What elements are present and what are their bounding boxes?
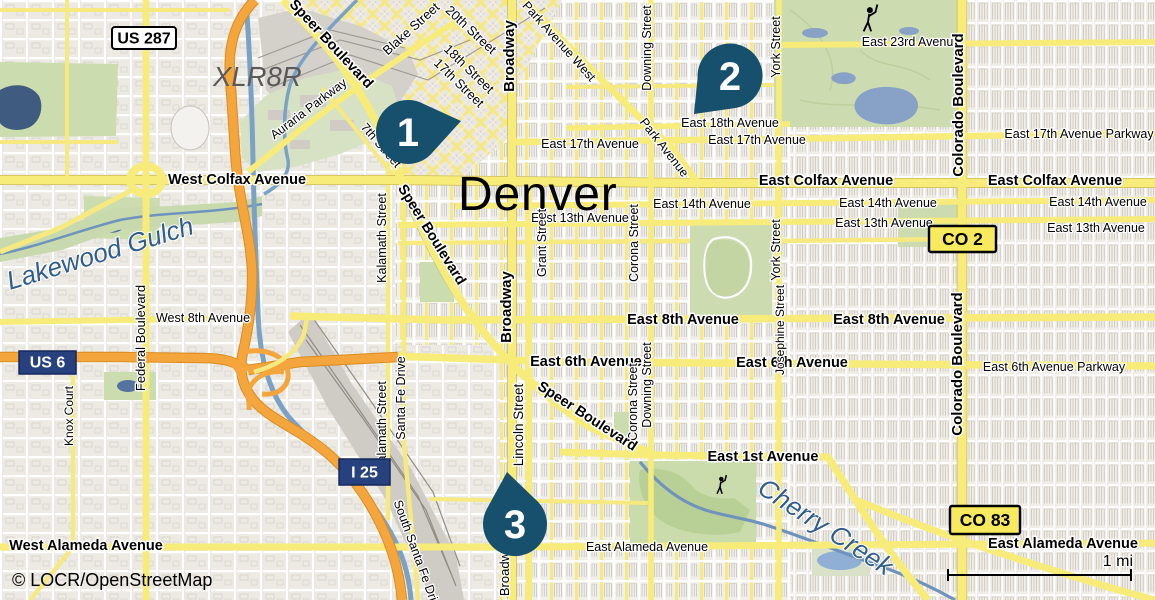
- svg-text:Lincoln Street: Lincoln Street: [511, 383, 526, 466]
- svg-text:XLR8R: XLR8R: [212, 61, 302, 92]
- svg-text:East 17th Avenue Parkway: East 17th Avenue Parkway: [1004, 127, 1154, 141]
- svg-text:Knox Court: Knox Court: [62, 385, 76, 446]
- svg-text:East 18th Avenue: East 18th Avenue: [681, 116, 779, 130]
- svg-text:York Street: York Street: [769, 16, 783, 78]
- svg-text:Colorado Boulevard: Colorado Boulevard: [950, 33, 967, 176]
- svg-text:East 14th Avenue: East 14th Avenue: [653, 197, 751, 211]
- svg-text:3: 3: [504, 503, 526, 547]
- svg-text:US 287: US 287: [117, 31, 170, 48]
- svg-text:East 14th Avenue: East 14th Avenue: [839, 196, 937, 210]
- svg-text:Downing Street: Downing Street: [640, 5, 654, 91]
- svg-text:East 13th Avenue: East 13th Avenue: [1047, 221, 1145, 235]
- svg-text:Broadway: Broadway: [501, 20, 518, 92]
- svg-text:Colorado Boulevard: Colorado Boulevard: [949, 292, 966, 435]
- svg-text:2: 2: [719, 55, 741, 99]
- svg-text:© LOCR/OpenStreetMap: © LOCR/OpenStreetMap: [12, 570, 212, 590]
- svg-text:East 17th Avenue: East 17th Avenue: [541, 137, 639, 151]
- svg-text:East Colfax Avenue: East Colfax Avenue: [988, 173, 1122, 189]
- svg-text:East 23rd Avenue: East 23rd Avenue: [862, 35, 961, 49]
- svg-text:West Colfax Avenue: West Colfax Avenue: [168, 172, 306, 188]
- svg-text:York Street: York Street: [769, 219, 783, 281]
- svg-text:US 6: US 6: [30, 355, 66, 372]
- svg-text:East 1st Avenue: East 1st Avenue: [708, 449, 819, 465]
- svg-text:East 17th Avenue: East 17th Avenue: [708, 133, 806, 147]
- svg-text:East 6th Avenue Parkway: East 6th Avenue Parkway: [983, 360, 1126, 374]
- svg-text:Corona Street: Corona Street: [627, 204, 641, 282]
- svg-text:CO 2: CO 2: [942, 229, 983, 249]
- svg-text:I 25: I 25: [351, 465, 378, 482]
- svg-text:West 8th Avenue: West 8th Avenue: [156, 311, 250, 325]
- svg-text:East 14th Avenue: East 14th Avenue: [1049, 195, 1147, 209]
- svg-text:East 8th Avenue: East 8th Avenue: [627, 312, 739, 328]
- svg-text:East 8th Avenue: East 8th Avenue: [833, 312, 945, 328]
- svg-text:Broadway: Broadway: [498, 271, 515, 343]
- svg-text:Josephine Street: Josephine Street: [773, 284, 787, 375]
- svg-text:West Alameda Avenue: West Alameda Avenue: [9, 538, 163, 554]
- svg-text:CO 83: CO 83: [960, 510, 1011, 530]
- svg-text:Federal Boulevard: Federal Boulevard: [133, 285, 148, 391]
- svg-text:East 13th Avenue: East 13th Avenue: [835, 216, 933, 230]
- svg-text:Grant Street: Grant Street: [535, 208, 549, 277]
- svg-text:Corona Street: Corona Street: [626, 363, 640, 441]
- svg-text:Santa Fe Drive: Santa Fe Drive: [394, 356, 408, 439]
- svg-text:Kalamath Street: Kalamath Street: [375, 193, 389, 283]
- svg-text:1 mi: 1 mi: [1103, 553, 1133, 570]
- svg-text:East Alameda Avenue: East Alameda Avenue: [586, 540, 708, 554]
- svg-text:East Alameda Avenue: East Alameda Avenue: [988, 536, 1138, 552]
- svg-text:Downing Street: Downing Street: [640, 342, 654, 428]
- svg-text:1: 1: [397, 111, 419, 155]
- svg-text:East Colfax Avenue: East Colfax Avenue: [759, 173, 893, 189]
- svg-text:Kalamath Street: Kalamath Street: [375, 381, 389, 471]
- svg-text:East 6th Avenue: East 6th Avenue: [736, 355, 848, 371]
